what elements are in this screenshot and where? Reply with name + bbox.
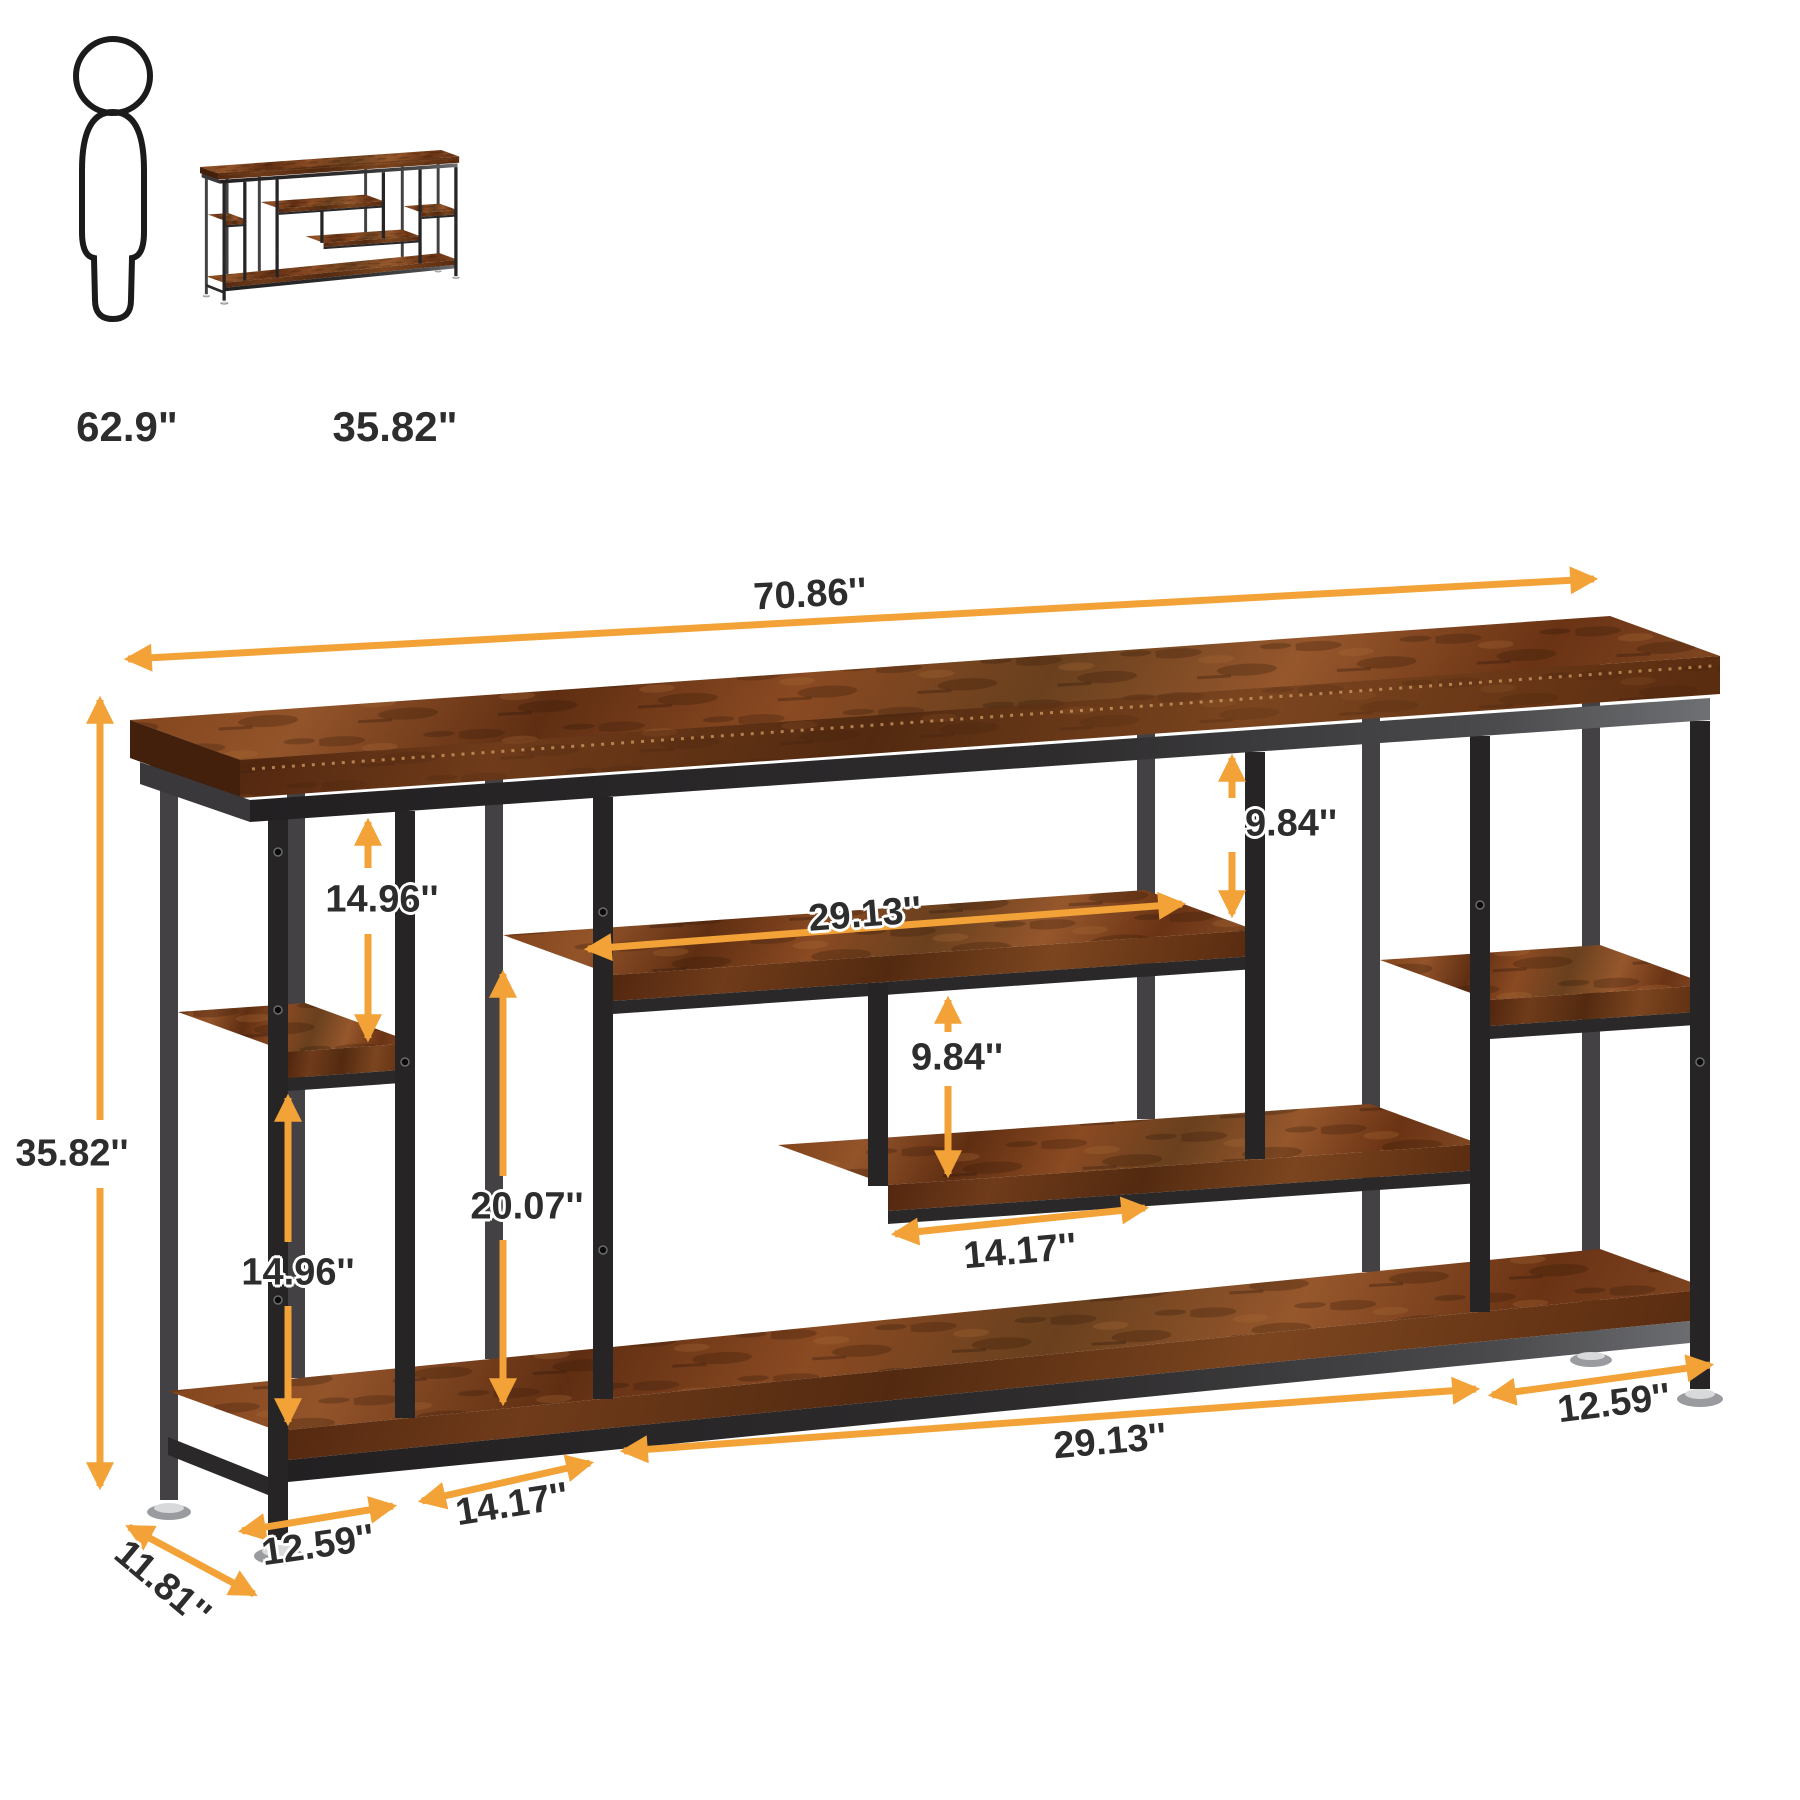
right-shelf xyxy=(1380,945,1710,1039)
person-height-label: 62.9" xyxy=(76,403,178,451)
dim-label-overall-height: 35.82'' xyxy=(15,1133,128,1176)
dim-label-left-lower: 14.96'' xyxy=(241,1252,354,1295)
dim-label-left-upper: 14.96'' xyxy=(325,879,438,922)
dim-label-top-right-gap: 9.84'' xyxy=(1245,803,1337,846)
thumbnail-width-label: 35.82" xyxy=(332,403,457,451)
dim-label-clearance: 20.07'' xyxy=(470,1186,583,1229)
dim-label-upper-shelf: 29.13'' xyxy=(807,889,923,941)
dim-label-top-width: 70.86'' xyxy=(752,571,867,620)
person-icon xyxy=(76,39,150,319)
dim-label-center-gap: 9.84'' xyxy=(911,1037,1003,1080)
left-shelf xyxy=(178,1003,415,1091)
furniture-illustration xyxy=(130,616,1723,1565)
product-thumbnail xyxy=(200,150,460,305)
